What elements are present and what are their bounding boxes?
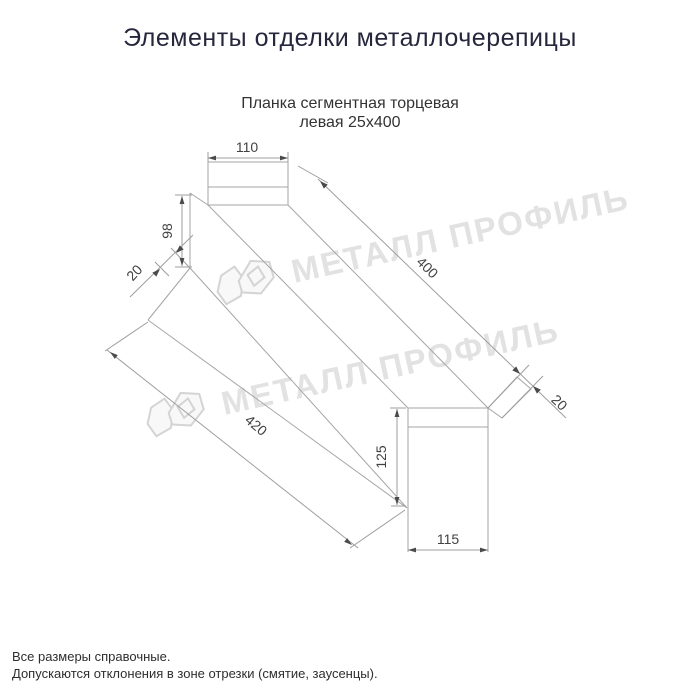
dim-98-lines [175, 195, 192, 267]
part-near-end-fold-tab [488, 377, 531, 418]
dimension-arrows [110, 156, 541, 553]
dim-label-length-top: 400 [414, 254, 442, 282]
dimension-lines [105, 152, 566, 550]
dim-label-right-end-height: 125 [373, 445, 389, 469]
part-long-edge-front [190, 268, 407, 508]
dim-label-left-fold: 20 [123, 261, 145, 283]
part-long-edge-upper-right [288, 205, 488, 408]
dim-label-left-end-height: 98 [159, 223, 175, 239]
footer-note-2: Допускаются отклонения в зоне отрезки (с… [12, 665, 378, 682]
product-name: Планка сегментная торцевая левая 25х400 [0, 94, 700, 132]
footer-note-1: Все размеры справочные. [12, 648, 378, 665]
dim-400-and-20-right-lines [298, 166, 566, 418]
dim-20-left-lines [130, 235, 193, 297]
dim-label-right-fold: 20 [548, 391, 570, 413]
dim-label-length-bottom: 420 [242, 412, 270, 439]
dim-420-lines [105, 322, 405, 548]
part-far-end-face [208, 162, 288, 205]
footer-notes: Все размеры справочные. Допускаются откл… [12, 648, 378, 682]
dim-label-bottom-width: 115 [437, 531, 460, 547]
page-title: Элементы отделки металлочерепицы [0, 24, 700, 53]
part-outline [148, 162, 531, 552]
part-long-edge-bottom [148, 320, 407, 508]
part-long-edge-top [208, 205, 408, 408]
product-name-line1: Планка сегментная торцевая [0, 94, 700, 113]
product-name-line2: левая 25х400 [0, 113, 700, 132]
dim-label-top-width: 110 [236, 139, 259, 155]
part-far-end-side [190, 193, 208, 268]
drawing-page: МЕТАЛЛ ПРОФИЛЬ МЕТАЛЛ ПРОФИЛЬ [0, 0, 700, 700]
